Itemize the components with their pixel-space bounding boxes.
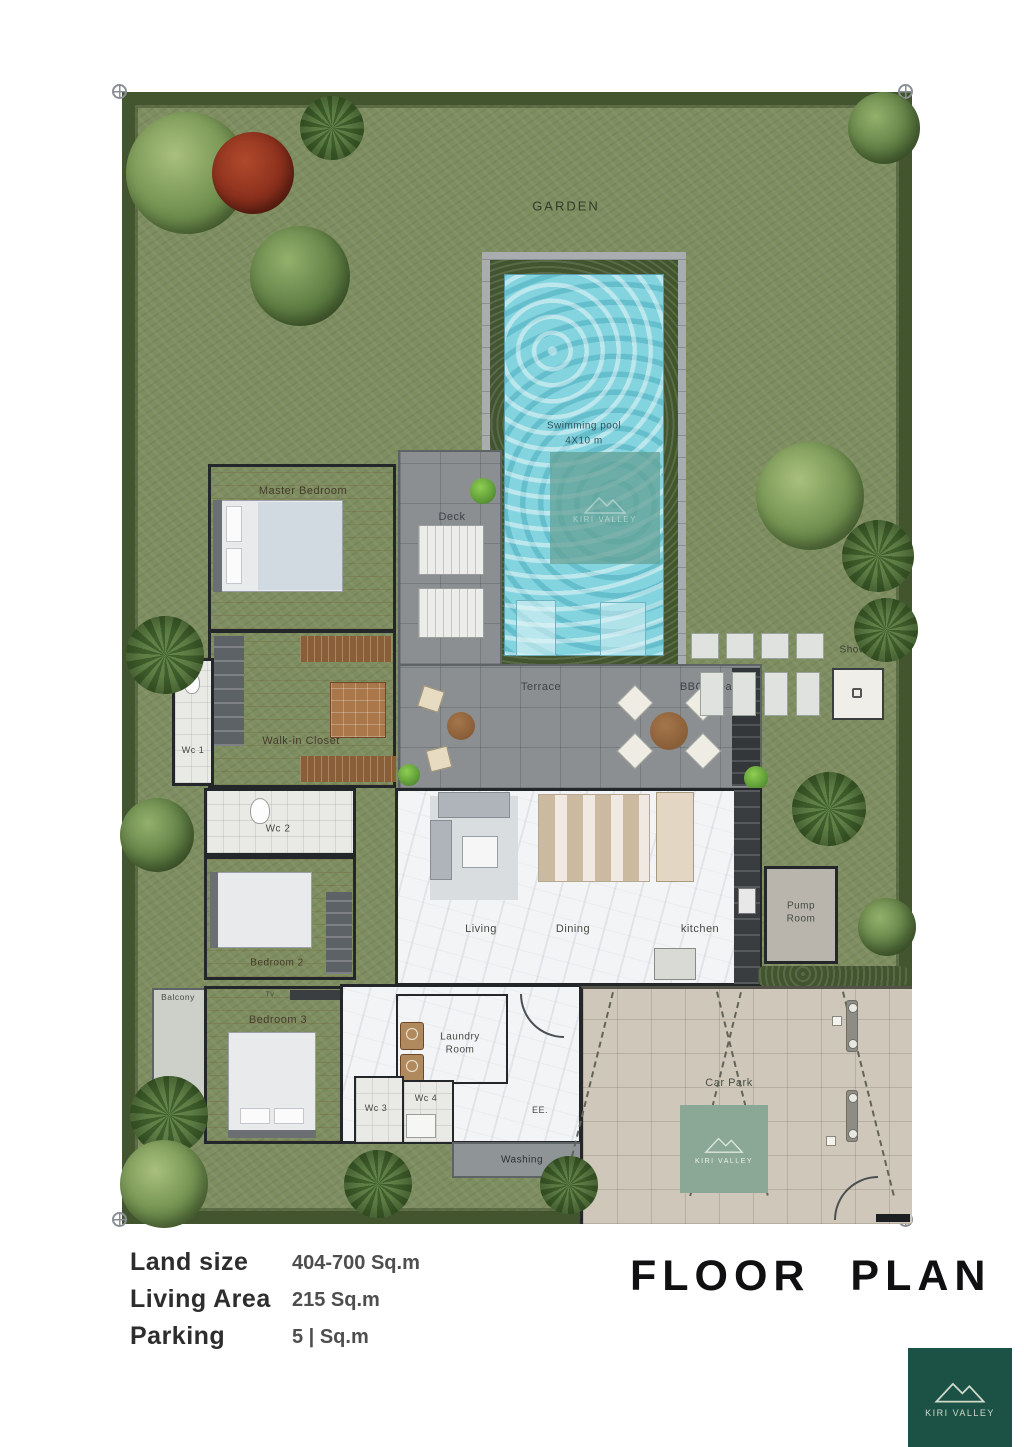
tv-label: Tv (266, 992, 275, 999)
tree (250, 226, 350, 326)
spec-row: Land size 404-700 Sq.m (130, 1248, 570, 1277)
stepping-stone (726, 633, 754, 659)
wc4-label: Wc 4 (415, 1093, 438, 1103)
pillow (240, 1108, 270, 1124)
corner-mark-icon (112, 1212, 127, 1227)
post-marker (826, 1136, 836, 1146)
dining-table (538, 794, 650, 882)
mountain-icon (934, 1378, 986, 1404)
palm-tree (344, 1150, 412, 1218)
spec-label: Parking (130, 1322, 292, 1351)
red-flower-tree (212, 132, 294, 214)
mountain-icon (583, 493, 627, 515)
spec-label: Living Area (130, 1285, 292, 1314)
corner-mark-icon (112, 84, 127, 99)
bed-headboard (210, 872, 218, 948)
bedroom2-label: Bedroom 2 (250, 958, 303, 969)
round-table (650, 712, 688, 750)
post-marker (832, 1016, 842, 1026)
sofa (430, 820, 452, 880)
dresser (214, 636, 244, 746)
stepping-stone (761, 633, 789, 659)
pool-watermark-text: KIRI VALLEY (573, 515, 637, 524)
pump-room-label: Pump Room (776, 901, 826, 926)
wardrobe (326, 892, 352, 974)
wc2-label: Wc 2 (266, 824, 291, 835)
stove-icon (738, 888, 756, 914)
tree (120, 798, 194, 872)
motorcycle-icon (846, 1090, 858, 1142)
stepping-stone (700, 672, 724, 716)
palm-tree (842, 520, 914, 592)
wardrobe (300, 636, 392, 662)
motorcycle-icon (846, 1000, 858, 1052)
spec-row: Living Area 215 Sq.m (130, 1285, 570, 1314)
bed-headboard (213, 500, 222, 592)
mountain-icon (703, 1134, 745, 1154)
sofa (438, 792, 510, 818)
kitchen-counter (734, 790, 760, 984)
bush-row (758, 966, 908, 986)
tree (120, 1140, 208, 1228)
balcony-label: Balcony (161, 992, 195, 1002)
living-label: Living (465, 923, 497, 935)
pool-step (600, 602, 646, 656)
washing-label: Washing (501, 1155, 543, 1166)
closet-island (330, 682, 386, 738)
palm-tree (126, 616, 204, 694)
pool-size-label: 4X10 m (565, 436, 602, 447)
coffee-table (462, 836, 498, 868)
garden-label: GARDEN (532, 199, 600, 214)
stepping-stone (796, 672, 820, 716)
pool-watermark-square: KIRI VALLEY (550, 452, 660, 564)
car-park-logo-square: KIRI VALLEY (680, 1105, 768, 1193)
car-park-label: Car Park (705, 1077, 752, 1089)
kitchen-island (656, 792, 694, 882)
walk-in-closet-label: Walk-in Closet (262, 735, 340, 747)
stepping-stone (691, 633, 719, 659)
round-table (447, 712, 475, 740)
pool-step (516, 600, 556, 656)
stepping-stone (732, 672, 756, 716)
tree (858, 898, 916, 956)
spec-label: Land size (130, 1248, 292, 1277)
bed-headboard (228, 1130, 316, 1138)
bush (744, 766, 768, 790)
bed (210, 872, 312, 948)
bush (470, 478, 496, 504)
spec-value: 5 | Sq.m (292, 1322, 369, 1351)
tree (848, 92, 920, 164)
washer-door-icon (406, 1028, 418, 1040)
tv-console (290, 990, 346, 1000)
master-bedroom-label: Master Bedroom (259, 485, 347, 497)
pool-name-label: Swimming pool (547, 421, 621, 432)
wc3-label: Wc 3 (365, 1103, 388, 1113)
gate-wall (876, 1214, 910, 1222)
bush (398, 764, 420, 786)
terrace-label: Terrace (521, 681, 561, 693)
bedroom3-label: Bedroom 3 (249, 1014, 307, 1026)
brand-logo-text: KIRI VALLEY (925, 1408, 995, 1418)
deck-label: Deck (438, 511, 465, 523)
pillow (226, 548, 242, 584)
ee-label: EE. (532, 1105, 548, 1115)
shower-tray (406, 1114, 436, 1138)
wc2 (204, 788, 356, 856)
dining-label: Dining (556, 923, 590, 935)
laundry-room-label: Laundry Room (429, 1032, 491, 1057)
brand-logo: KIRI VALLEY (908, 1348, 1012, 1447)
stepping-stone (764, 672, 788, 716)
stepping-stone (796, 633, 824, 659)
floor-plan-page: GARDEN KIRI VALLEY Swimming pool 4X10 m … (0, 0, 1024, 1447)
kitchen-label: kitchen (681, 923, 719, 935)
wardrobe (300, 756, 396, 782)
bed-blanket (258, 502, 342, 590)
washer-door-icon (406, 1060, 418, 1072)
pillow (274, 1108, 304, 1124)
palm-tree (300, 96, 364, 160)
shower-head-icon (852, 688, 862, 698)
plan-title: FLOOR PLAN (630, 1252, 991, 1301)
car-park-logo-text: KIRI VALLEY (695, 1158, 753, 1165)
tree (756, 442, 864, 550)
wc1-label: Wc 1 (182, 745, 205, 755)
spec-row: Parking 5 | Sq.m (130, 1322, 570, 1351)
spec-value: 404-700 Sq.m (292, 1248, 420, 1277)
spec-value: 215 Sq.m (292, 1285, 380, 1314)
lounge-chair (418, 525, 484, 575)
sink-icon (654, 948, 696, 980)
palm-tree (854, 598, 918, 662)
palm-tree (540, 1156, 598, 1214)
pillow (226, 506, 242, 542)
toilet-icon (250, 798, 270, 824)
lounge-chair (418, 588, 484, 638)
palm-tree (792, 772, 866, 846)
